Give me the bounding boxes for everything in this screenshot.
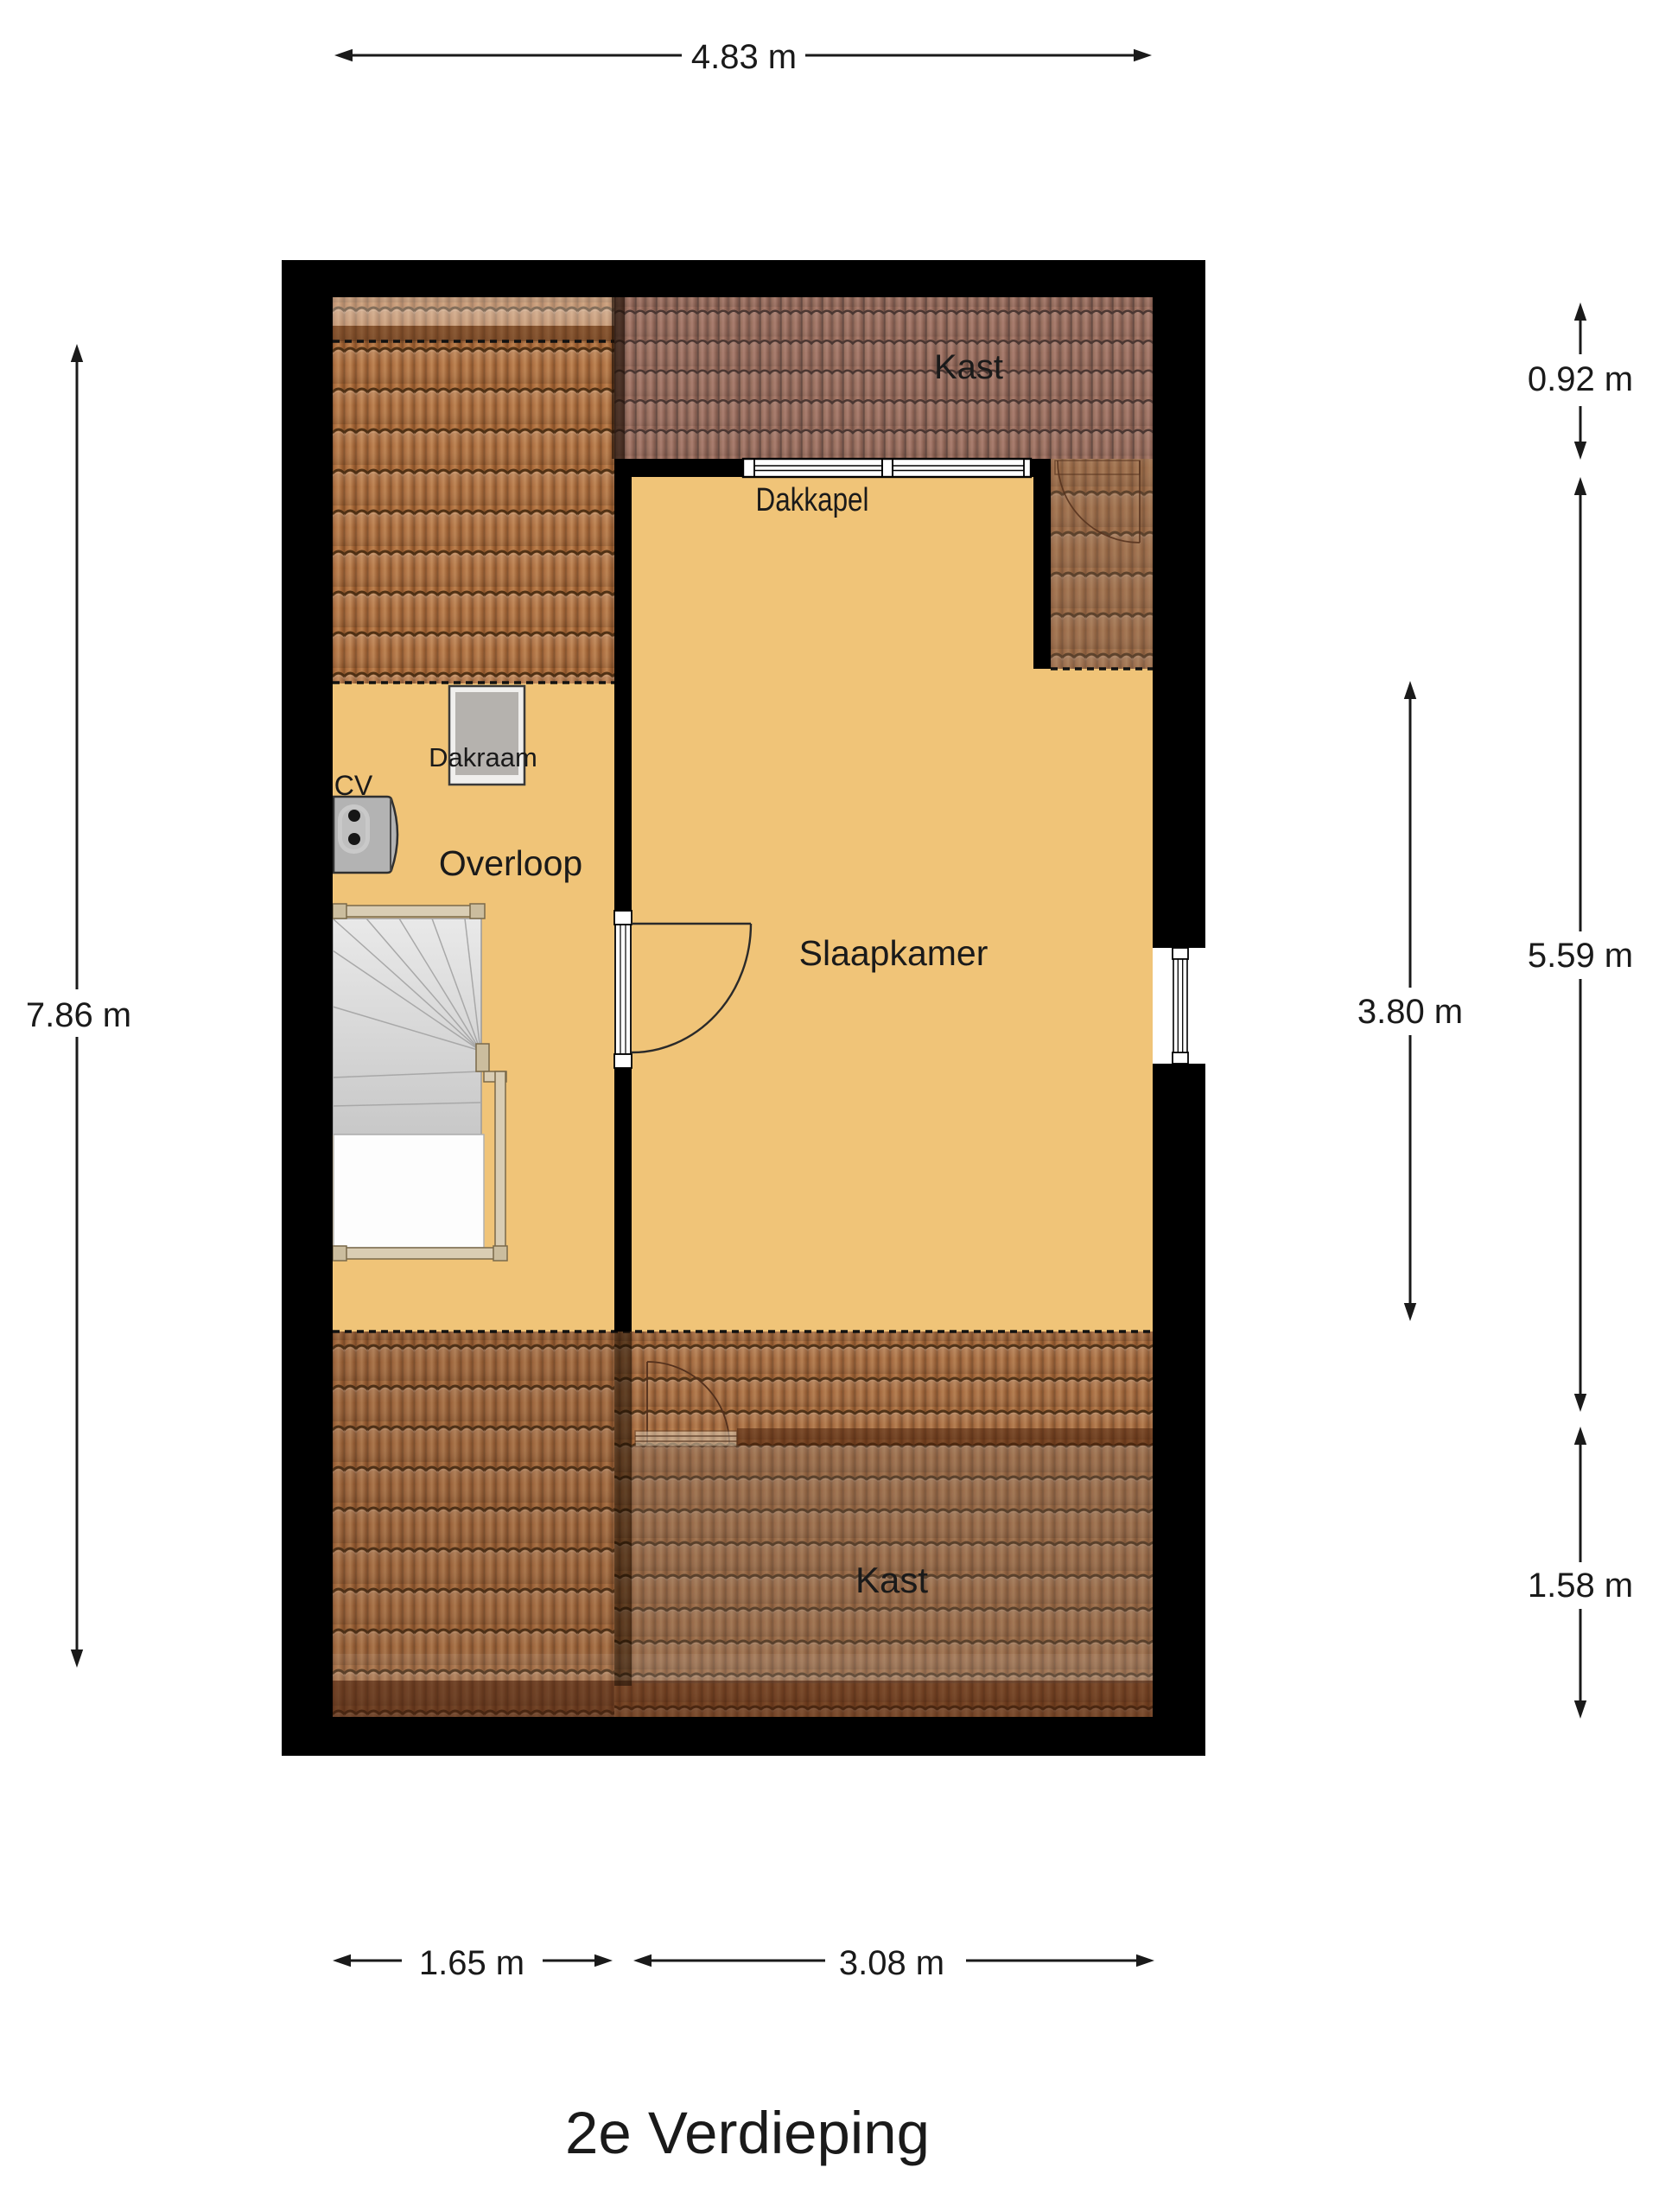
svg-text:Kast: Kast bbox=[855, 1560, 928, 1600]
svg-text:4.83 m: 4.83 m bbox=[691, 38, 797, 76]
svg-text:2e Verdieping: 2e Verdieping bbox=[565, 2100, 930, 2166]
svg-text:Kast: Kast bbox=[934, 348, 1003, 386]
svg-text:3.80 m: 3.80 m bbox=[1357, 993, 1463, 1031]
svg-text:0.92 m: 0.92 m bbox=[1528, 360, 1633, 398]
svg-text:CV: CV bbox=[334, 770, 373, 801]
svg-text:Dakraam: Dakraam bbox=[429, 742, 537, 772]
svg-text:7.86 m: 7.86 m bbox=[26, 996, 131, 1034]
svg-text:5.59 m: 5.59 m bbox=[1528, 937, 1633, 975]
svg-text:1.65 m: 1.65 m bbox=[419, 1944, 524, 1982]
svg-text:Slaapkamer: Slaapkamer bbox=[799, 933, 988, 973]
svg-text:1.58 m: 1.58 m bbox=[1528, 1567, 1633, 1605]
svg-text:3.08 m: 3.08 m bbox=[839, 1944, 944, 1982]
svg-text:Dakkapel: Dakkapel bbox=[756, 482, 869, 518]
svg-text:Overloop: Overloop bbox=[439, 843, 582, 883]
